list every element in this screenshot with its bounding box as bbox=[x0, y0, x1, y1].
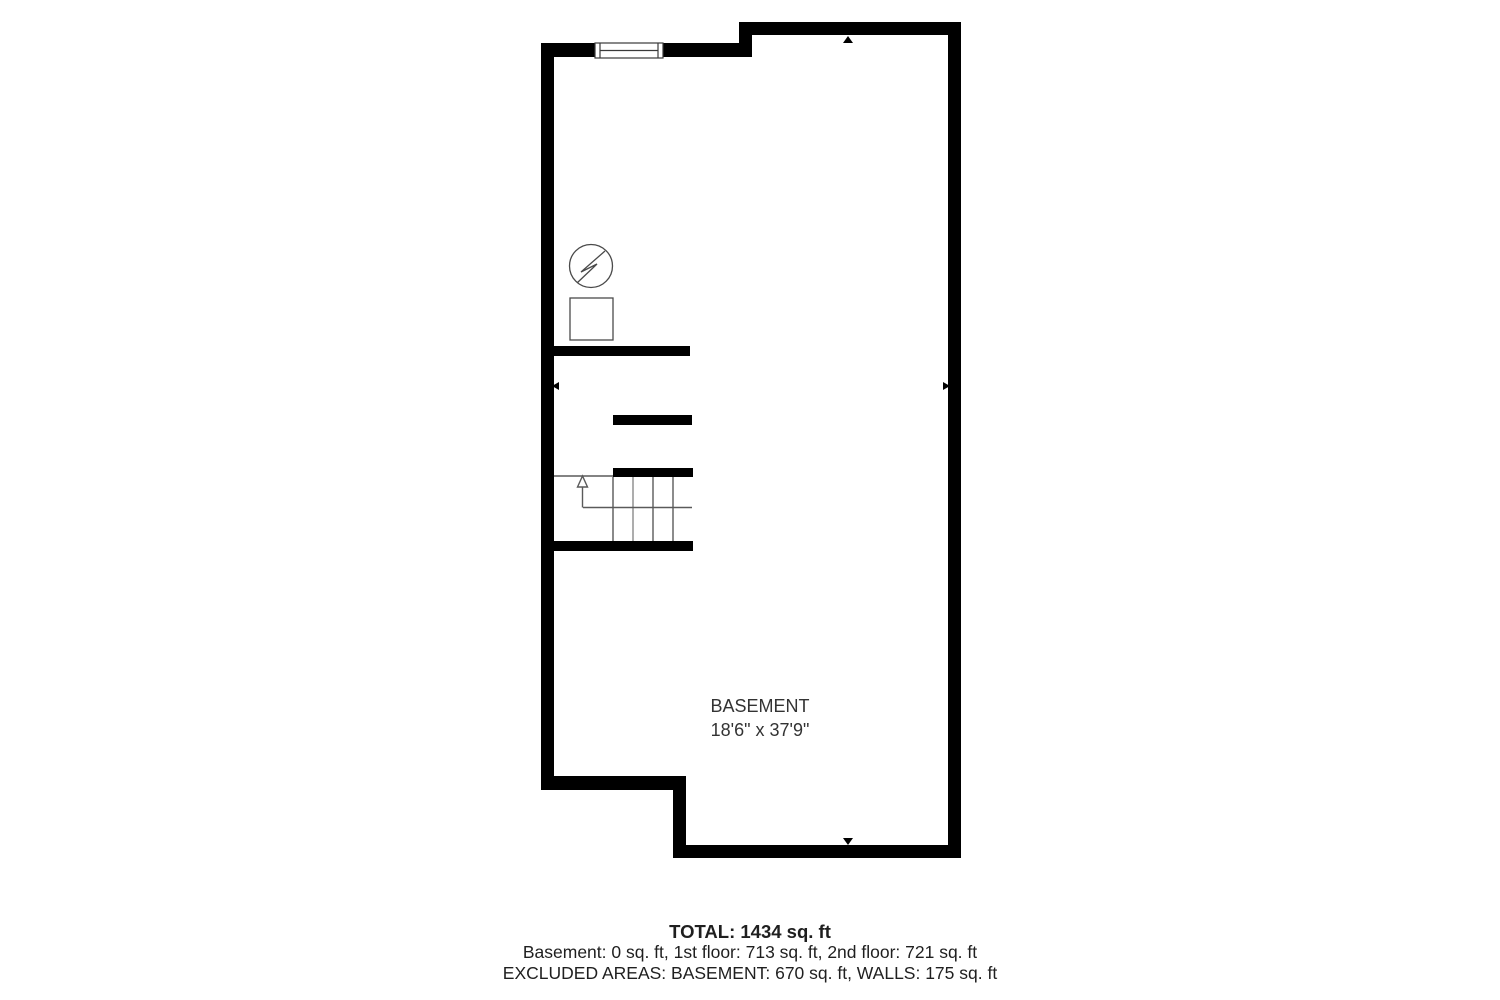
water-heater-icon bbox=[570, 245, 613, 288]
interior-wall-utility-room bbox=[548, 346, 690, 356]
interior-wall-stairs-top bbox=[613, 468, 693, 477]
window bbox=[595, 43, 663, 58]
utility-unit-icon bbox=[570, 298, 613, 340]
area-summary: TOTAL: 1434 sq. ft Basement: 0 sq. ft, 1… bbox=[0, 921, 1500, 984]
summary-floors: Basement: 0 sq. ft, 1st floor: 713 sq. f… bbox=[0, 942, 1500, 963]
room-name: BASEMENT bbox=[510, 694, 1010, 718]
stair-direction-arrow bbox=[578, 476, 588, 487]
floorplan-page: BASEMENT 18'6" x 37'9" TOTAL: 1434 sq. f… bbox=[0, 0, 1500, 1000]
marker-arrow-bottom bbox=[843, 838, 853, 845]
room-dimensions: 18'6" x 37'9" bbox=[510, 718, 1010, 742]
marker-arrow-top bbox=[843, 36, 853, 43]
interior-wall-stairs-bottom bbox=[548, 541, 693, 551]
interior-wall-partition bbox=[613, 415, 692, 425]
summary-excluded: EXCLUDED AREAS: BASEMENT: 670 sq. ft, WA… bbox=[0, 963, 1500, 984]
floorplan-drawing bbox=[0, 0, 1500, 1000]
room-label-block: BASEMENT 18'6" x 37'9" bbox=[510, 694, 1010, 742]
staircase bbox=[554, 476, 692, 541]
summary-total: TOTAL: 1434 sq. ft bbox=[0, 921, 1500, 942]
